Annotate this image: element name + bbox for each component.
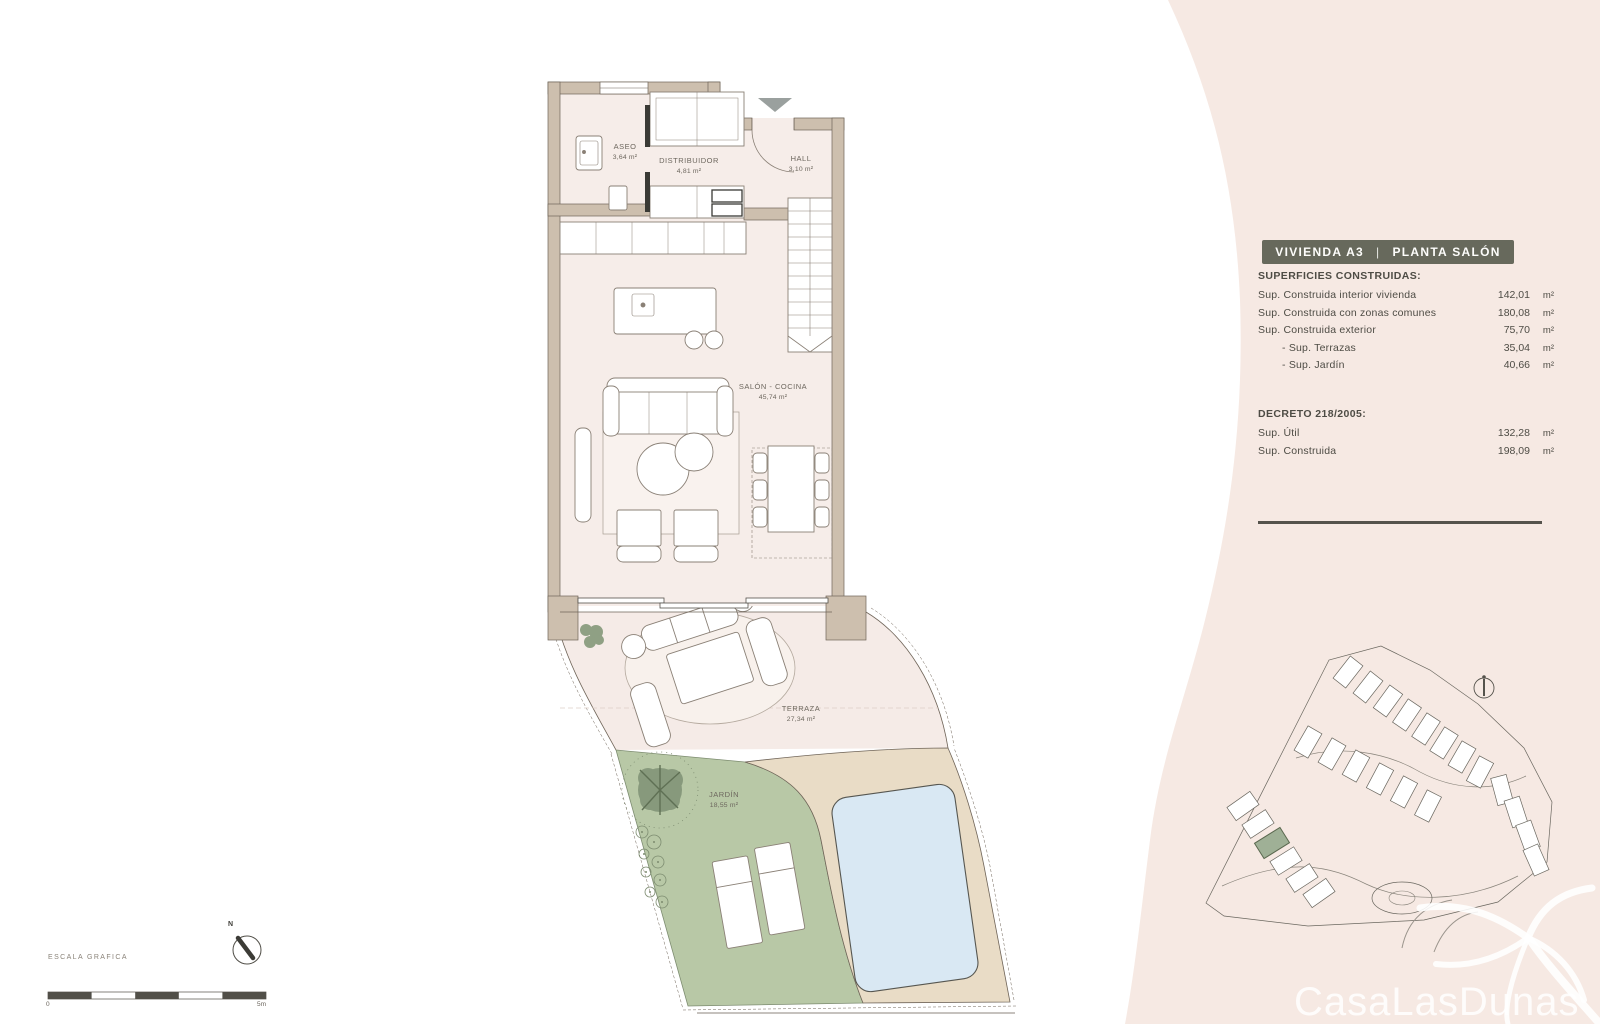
room-label-hall: HALL 3,10 m² [789,154,813,174]
side-table [675,433,713,471]
bench [575,428,591,522]
floor-name: PLANTA SALÓN [1392,245,1500,259]
brochure-page: VIVIENDA A3 | PLANTA SALÓN SUPERFICIES C… [0,0,1600,1024]
scale-bar-title: ESCALA GRAFICA [48,954,128,961]
brand-logo: CasaLasDunas [1294,980,1580,1024]
superficies-block: SUPERFICIES CONSTRUIDAS: Sup. Construida… [1258,270,1554,377]
right-panel-background [1125,0,1600,1024]
decreto-heading: DECRETO 218/2005: [1258,408,1554,427]
room-label-distribuidor: DISTRIBUIDOR 4,81 m² [659,156,719,176]
room-label-jardin: JARDÍN 18,55 m² [709,790,739,810]
superficies-heading: SUPERFICIES CONSTRUIDAS: [1258,270,1554,289]
surface-row: Sup. Construida exterior 75,70 m² [1258,324,1554,342]
title-separator: | [1376,245,1380,259]
compass-north-label: N [228,921,233,928]
surface-row: Sup. Construida con zonas comunes 180,08… [1258,307,1554,325]
room-label-terraza: TERRAZA 27,34 m² [782,704,821,724]
room-label-aseo: ASEO 3,64 m² [613,142,637,162]
panel-divider [1258,521,1542,524]
surface-row: Sup. Construida interior vivienda 142,01… [1258,289,1554,307]
north-compass-icon [233,936,261,964]
surface-row: - Sup. Jardín 40,66 m² [1258,359,1554,377]
surface-row: - Sup. Terrazas 35,04 m² [1258,342,1554,360]
surface-row: Sup. Útil 132,28 m² [1258,427,1554,445]
entrance-arrow-icon [758,98,792,112]
decreto-block: DECRETO 218/2005: Sup. Útil 132,28 m² Su… [1258,408,1554,462]
dining-set [753,446,829,532]
scale-start-label: 0 [46,1001,50,1008]
unit-name: VIVIENDA A3 [1275,245,1364,259]
sofa [603,378,733,436]
kitchen-counter [560,222,746,254]
surface-row: Sup. Construida 198,09 m² [1258,445,1554,463]
room-label-salon-cocina: SALÓN - COCINA 45,74 m² [739,382,807,402]
plan-title-bar: VIVIENDA A3 | PLANTA SALÓN [1262,240,1514,264]
top-window [600,82,648,94]
pool [830,782,980,993]
scale-bar [48,992,266,999]
scale-end-label: 5m [257,1001,266,1008]
